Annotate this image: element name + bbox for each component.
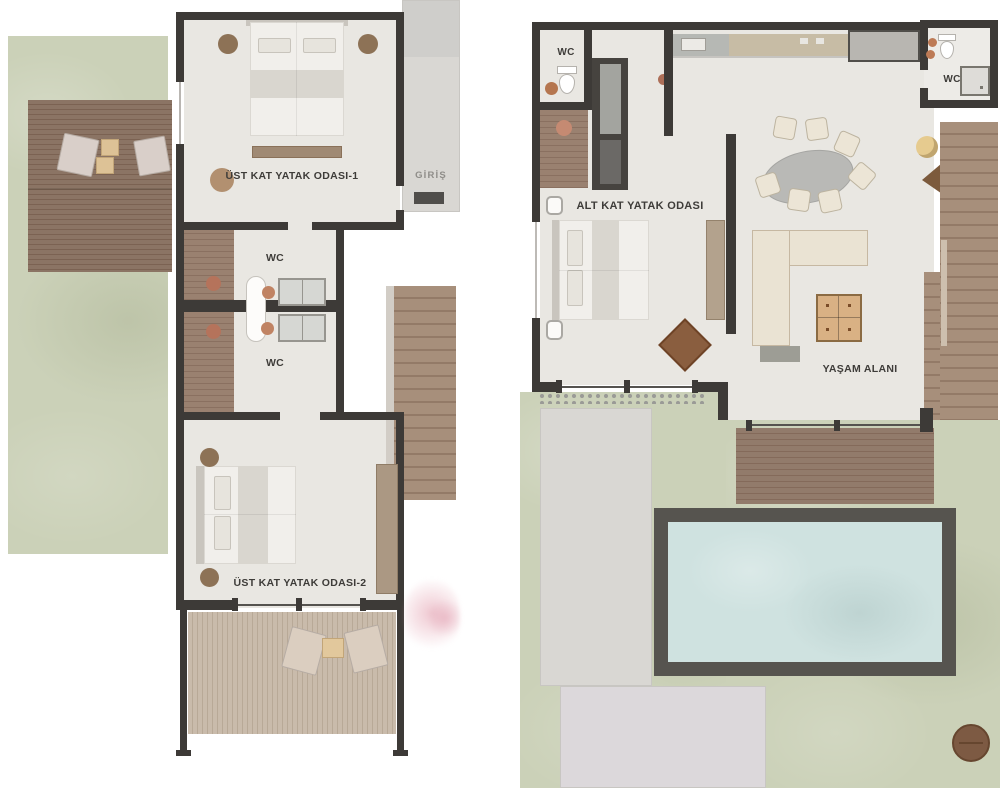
wall <box>990 20 998 108</box>
bed-pillow <box>567 230 583 266</box>
wall <box>726 134 736 334</box>
bed-pillow <box>258 38 291 53</box>
railing-cap <box>393 750 408 756</box>
dining-chair <box>787 188 812 213</box>
stump-grain-line <box>959 742 983 744</box>
wardrobe <box>376 464 398 594</box>
hall-wardrobe <box>592 58 628 190</box>
sink-bowl <box>545 82 558 95</box>
bed-blanket <box>238 466 268 564</box>
wall <box>176 230 184 412</box>
pool-water <box>668 522 942 662</box>
bed-pillow <box>567 270 583 306</box>
wall <box>176 12 184 82</box>
entrance-label: GİRİŞ <box>402 170 460 181</box>
pebble-strip <box>538 392 706 404</box>
wall <box>532 382 558 392</box>
wall <box>532 22 540 222</box>
lower-floor-plan: WC ALT KAT YATAK <box>470 0 1000 806</box>
table-dot <box>848 304 851 307</box>
pink-bush <box>430 596 460 640</box>
wc-upper-label: WC <box>240 252 310 264</box>
deck-side-table <box>101 139 119 156</box>
nightstand <box>218 34 238 54</box>
upper-floor-plan: GİRİŞ <box>0 0 470 806</box>
sliding-door-post <box>624 380 630 393</box>
wall <box>176 144 184 228</box>
counter-edge <box>673 56 851 58</box>
wardrobe-panel <box>600 140 621 184</box>
window-glass-line <box>179 82 181 144</box>
wc-lower-label: WC <box>240 357 310 369</box>
kitchen-counter <box>729 34 851 56</box>
bed-bench <box>252 146 342 158</box>
table-dot <box>826 304 829 307</box>
wall <box>532 318 540 388</box>
cooktop-mark <box>800 38 808 44</box>
lower-bedroom-label: ALT KAT YATAK ODASI <box>560 200 720 212</box>
sliding-door-post <box>556 380 562 393</box>
wall <box>366 600 404 610</box>
window-glass-line <box>535 222 537 318</box>
bed-headboard <box>552 220 559 320</box>
garden-deck <box>28 100 172 272</box>
sink-bowl <box>261 322 274 335</box>
wall <box>920 88 928 108</box>
table-dot <box>848 328 851 331</box>
deck-side-table <box>96 157 114 174</box>
balcony-railing <box>180 610 187 756</box>
bed-blanket <box>250 70 344 98</box>
stair-stringer <box>386 286 394 482</box>
dining-chair <box>817 188 843 214</box>
sofa-side-table <box>760 346 800 362</box>
sliding-door-post <box>360 598 366 611</box>
bed-seam <box>296 22 297 136</box>
entry-pouf <box>556 120 572 136</box>
bed-seam <box>559 270 649 271</box>
sofa-arm <box>752 230 790 346</box>
wc-right-label: WC <box>938 74 966 85</box>
sink-bowl <box>928 38 937 47</box>
wall <box>718 382 728 420</box>
wall <box>924 100 998 108</box>
wall <box>584 22 592 110</box>
bedroom1-label: ÜST KAT YATAK ODASI-1 <box>192 170 392 182</box>
wall <box>176 412 280 420</box>
toilet-tank <box>938 34 956 41</box>
wc-left-label: WC <box>544 47 588 58</box>
table-grid-line <box>838 296 839 340</box>
patio-concrete <box>540 408 652 686</box>
sliding-door-post <box>232 598 238 611</box>
dining-chair <box>805 117 830 142</box>
bedside-stool <box>546 196 563 215</box>
nightstand <box>200 448 219 467</box>
pool <box>654 508 956 676</box>
patio-concrete <box>560 686 766 788</box>
sliding-door-post <box>692 380 698 393</box>
railing-cap <box>176 750 191 756</box>
wall <box>396 12 404 186</box>
bed-headboard <box>196 466 204 564</box>
deck-seam <box>28 188 172 190</box>
sliding-door-post <box>296 598 302 611</box>
cooktop-mark <box>816 38 824 44</box>
toilet-tank <box>557 66 577 74</box>
corridor-pouf <box>206 324 221 339</box>
coffee-table <box>816 294 862 342</box>
staircase-lower-plan <box>940 122 998 420</box>
sink-bowl <box>926 50 935 59</box>
bedroom2-label: ÜST KAT YATAK ODASI-2 <box>200 577 400 589</box>
wall <box>920 20 998 28</box>
staircase-lower-landing <box>924 272 940 420</box>
wall <box>920 20 928 70</box>
table-dot <box>826 328 829 331</box>
deck-lounge-chair <box>133 135 171 176</box>
wardrobe-panel <box>600 64 621 134</box>
shower-divider-line <box>302 280 303 304</box>
bed-pillow <box>214 476 231 510</box>
plant-pot <box>916 136 938 158</box>
bed-pillow <box>214 516 231 550</box>
pool-deck <box>736 428 934 504</box>
deck-lounge-chair <box>56 133 99 178</box>
wardrobe <box>706 220 725 320</box>
shower-cabin <box>278 278 326 306</box>
living-floor <box>728 30 934 420</box>
bedside-stool <box>546 320 563 340</box>
wall <box>176 420 184 608</box>
table-grid-line <box>818 317 860 318</box>
bed-seam <box>204 514 296 515</box>
balcony-railing <box>397 610 404 756</box>
sink-bowl <box>262 286 275 299</box>
balcony-side-table <box>322 638 344 658</box>
shower-drain-dot <box>980 86 983 89</box>
shower-divider-line <box>302 316 303 340</box>
wall <box>664 30 673 136</box>
wall <box>176 12 404 20</box>
top-closet <box>848 30 920 62</box>
stair-stringer <box>941 240 947 346</box>
tree-stump <box>952 724 990 762</box>
shower-cabin <box>278 314 326 342</box>
entrance-path-upper <box>403 1 459 57</box>
nightstand <box>358 34 378 54</box>
corridor-pouf <box>206 276 221 291</box>
living-area-label: YAŞAM ALANI <box>800 363 920 375</box>
dining-chair <box>772 115 797 140</box>
bed-pillow <box>303 38 336 53</box>
floor-plan-page: GİRİŞ <box>0 0 1000 806</box>
wall <box>336 230 344 412</box>
kitchen-sink <box>681 38 706 51</box>
stair-base-wall <box>920 408 933 432</box>
corridor-wood-floor <box>184 228 234 416</box>
wall <box>312 222 404 230</box>
doormat <box>414 192 444 204</box>
wall <box>176 222 288 230</box>
wall <box>176 600 234 610</box>
wall <box>320 412 404 420</box>
